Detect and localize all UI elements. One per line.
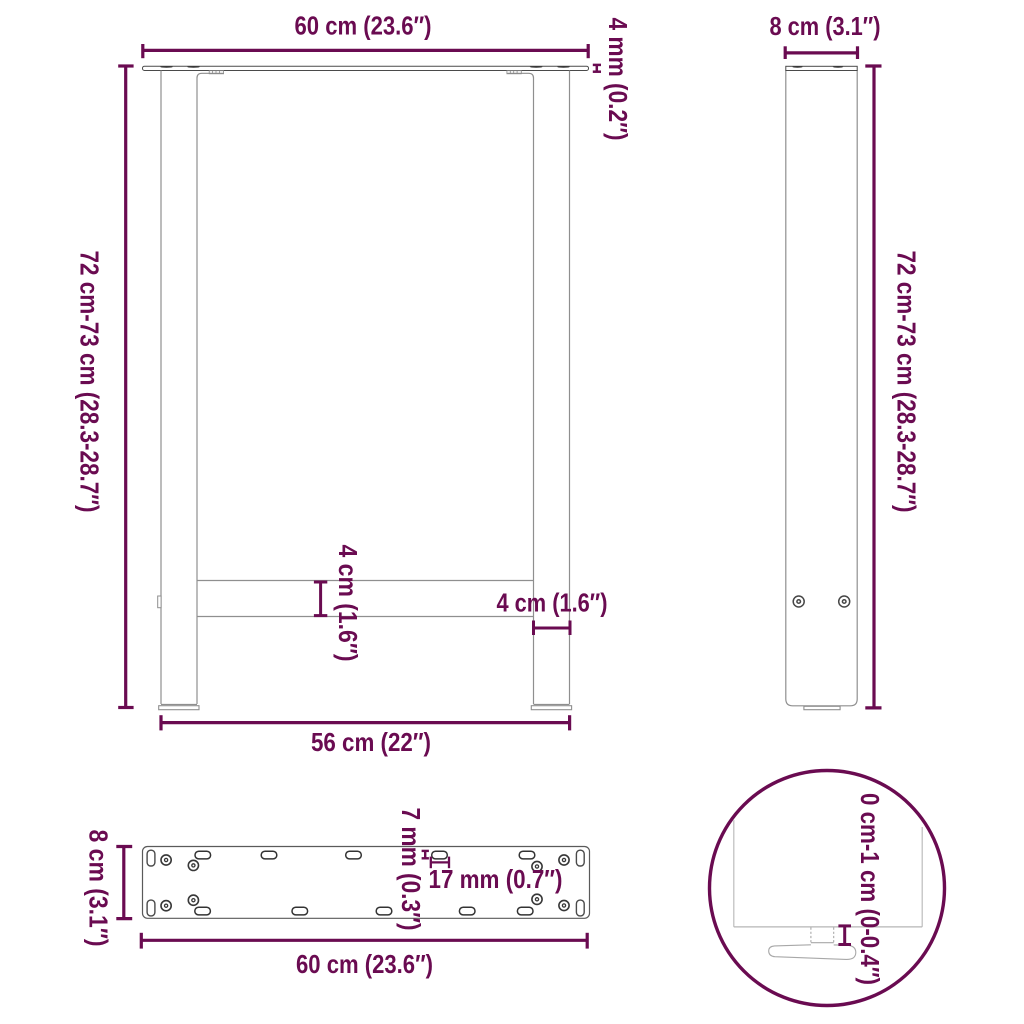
svg-text:4 cm (1.6″): 4 cm (1.6″) [333, 545, 363, 662]
svg-text:4 mm (0.2″): 4 mm (0.2″) [603, 18, 633, 141]
svg-text:60 cm (23.6″): 60 cm (23.6″) [295, 11, 432, 41]
svg-text:8 cm (3.1″): 8 cm (3.1″) [770, 11, 881, 41]
svg-text:56 cm (22″): 56 cm (22″) [311, 727, 431, 757]
svg-text:4 cm (1.6″): 4 cm (1.6″) [497, 588, 608, 618]
svg-text:60 cm (23.6″): 60 cm (23.6″) [296, 949, 433, 979]
svg-text:7 mm (0.3″): 7 mm (0.3″) [396, 808, 426, 931]
svg-text:8 cm (3.1″): 8 cm (3.1″) [84, 830, 114, 947]
svg-text:0 cm-1 cm (0-0.4″): 0 cm-1 cm (0-0.4″) [855, 793, 885, 985]
svg-text:17 mm (0.7″): 17 mm (0.7″) [429, 864, 563, 894]
svg-text:72 cm-73 cm (28.3-28.7″): 72 cm-73 cm (28.3-28.7″) [75, 251, 105, 513]
svg-text:72 cm-73 cm (28.3-28.7″): 72 cm-73 cm (28.3-28.7″) [891, 250, 921, 512]
